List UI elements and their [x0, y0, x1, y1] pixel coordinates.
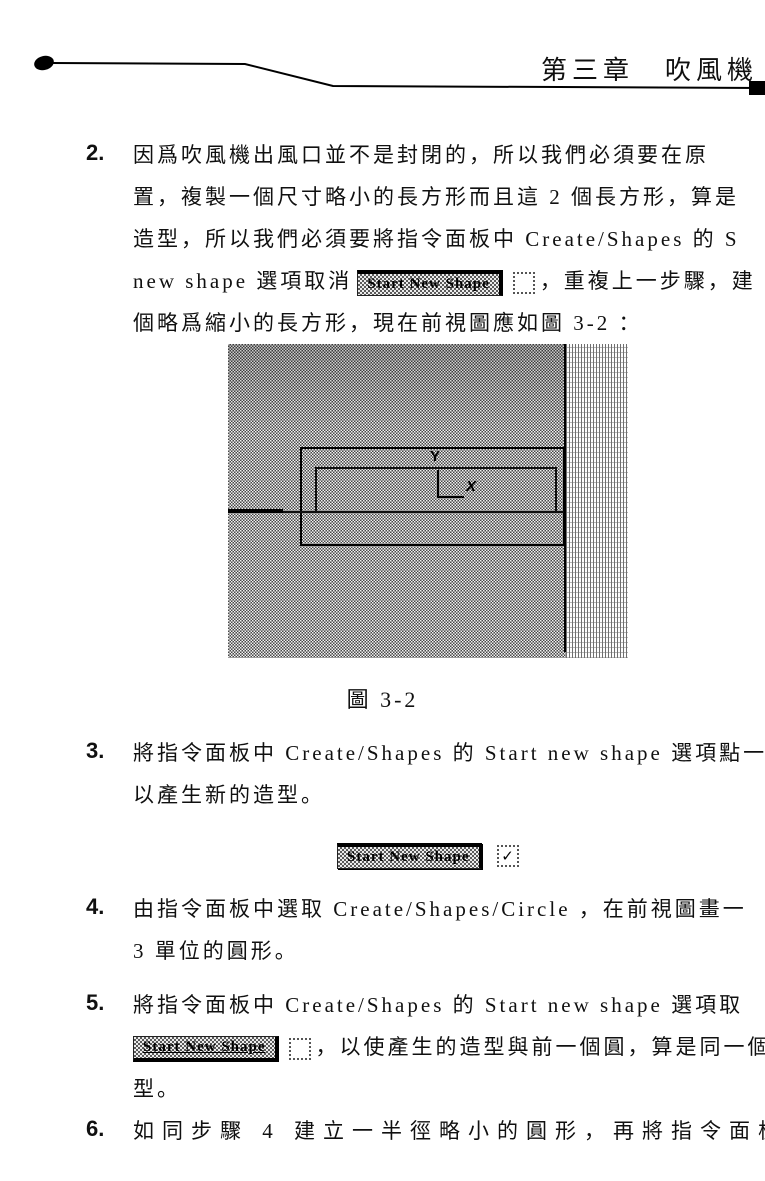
- step-4-line-2: 3 單位的圓形。: [133, 930, 747, 972]
- step-5-line-2-post: ，以使產生的造型與前一個圓，算是同一個: [316, 1035, 765, 1059]
- step-2-text: 因爲吹風機出風口並不是封閉的，所以我們必須要在原 置，複製一個尺寸略小的長方形而…: [133, 134, 756, 344]
- step-6-text: 如同步驟 4 建立一半徑略小的圓形，再將指令面板: [133, 1110, 765, 1152]
- step-number-4: 4.: [86, 894, 104, 920]
- checkbox-checked-icon: ✓: [501, 847, 514, 865]
- grid-line-segment: [228, 509, 283, 513]
- header-bullet-icon: [33, 54, 56, 72]
- start-new-shape-button[interactable]: Start New Shape: [357, 270, 503, 296]
- step-2-line-5: 個略爲縮小的長方形，現在前視圖應如圖 3-2 ：: [133, 302, 756, 344]
- book-page: 第三章 吹風機 2. 因爲吹風機出風口並不是封閉的，所以我們必須要在原 置，複製…: [0, 0, 765, 1181]
- step-2-line-3: 造型，所以我們必須要將指令面板中 Create/Shapes 的 S: [133, 218, 756, 260]
- start-new-shape-button[interactable]: Start New Shape: [133, 1036, 279, 1062]
- step-2-line-4: new shape 選項取消Start New Shape，重複上一步驟，建: [133, 260, 756, 302]
- step-4-text: 由指令面板中選取 Create/Shapes/Circle ，在前視圖畫一 3 …: [133, 888, 747, 972]
- step-3-line-2: 以產生新的造型。: [133, 774, 765, 816]
- step-2-line-4-pre: new shape 選項取消: [133, 269, 352, 293]
- inner-rectangle-shape: [315, 467, 557, 513]
- step-number-2: 2.: [86, 140, 104, 166]
- scan-shading: [228, 344, 566, 434]
- figure-caption: 圖 3-2: [0, 682, 765, 714]
- axis-x-label: X: [466, 478, 476, 495]
- step-2-line-2: 置，複製一個尺寸略小的長方形而且這 2 個長方形，算是: [133, 176, 756, 218]
- axis-y-line: [437, 470, 439, 498]
- start-new-shape-checkbox-checked[interactable]: ✓: [497, 845, 519, 867]
- command-panel-strip: [566, 344, 628, 658]
- chapter-title: 第三章 吹風機: [541, 50, 758, 87]
- step-3-line-1: 將指令面板中 Create/Shapes 的 Start new shape 選…: [133, 732, 765, 774]
- step-5-line-1: 將指令面板中 Create/Shapes 的 Start new shape 選…: [133, 984, 765, 1026]
- step-number-6: 6.: [86, 1116, 104, 1142]
- axis-x-line: [437, 496, 464, 498]
- start-new-shape-checkbox-unchecked[interactable]: [513, 272, 535, 294]
- start-new-shape-row: Start New Shape ✓: [337, 843, 524, 869]
- step-number-5: 5.: [86, 990, 104, 1016]
- step-number-3: 3.: [86, 738, 104, 764]
- step-5-text: 將指令面板中 Create/Shapes 的 Start new shape 選…: [133, 984, 765, 1110]
- axis-y-label: Y: [430, 448, 440, 465]
- step-4-line-1: 由指令面板中選取 Create/Shapes/Circle ，在前視圖畫一: [133, 888, 747, 930]
- start-new-shape-button[interactable]: Start New Shape: [337, 843, 482, 869]
- step-5-line-3: 型。: [133, 1068, 765, 1110]
- step-6-line-1: 如同步驟 4 建立一半徑略小的圓形，再將指令面板: [133, 1110, 765, 1152]
- step-3-text: 將指令面板中 Create/Shapes 的 Start new shape 選…: [133, 732, 765, 816]
- step-2-line-4-post: ，重複上一步驟，建: [540, 269, 756, 293]
- step-2-line-1: 因爲吹風機出風口並不是封閉的，所以我們必須要在原: [133, 134, 756, 176]
- figure-3-2: Y X: [228, 344, 628, 658]
- start-new-shape-checkbox-unchecked[interactable]: [289, 1038, 311, 1060]
- step-5-line-2: Start New Shape，以使產生的造型與前一個圓，算是同一個: [133, 1026, 765, 1068]
